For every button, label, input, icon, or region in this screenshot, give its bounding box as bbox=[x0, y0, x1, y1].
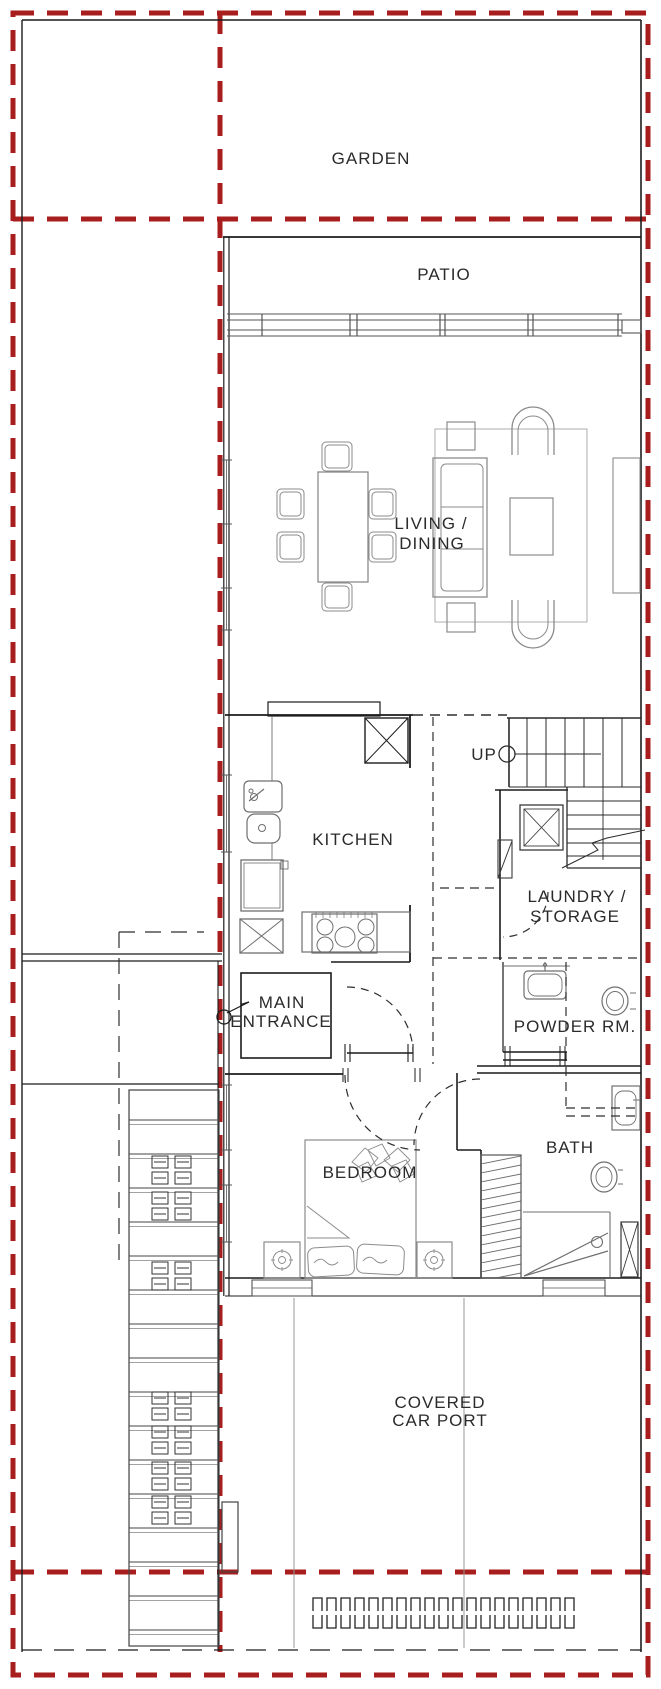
garden-label: GARDEN bbox=[332, 149, 411, 169]
bed bbox=[305, 1140, 416, 1278]
refrigerator-icon bbox=[241, 860, 288, 911]
bath-toilet-icon bbox=[591, 1162, 623, 1192]
living-dining-label-2: DINING bbox=[399, 534, 465, 554]
staircase bbox=[499, 718, 645, 868]
side-table-bottom bbox=[447, 603, 475, 632]
gate-fence bbox=[311, 1596, 577, 1630]
bathroom-fixtures bbox=[481, 1086, 640, 1278]
up-label: UP bbox=[471, 745, 497, 765]
stair-break-line bbox=[562, 830, 645, 868]
bed-pillows bbox=[307, 1244, 404, 1277]
living-dining-label-1: LIVING / bbox=[394, 514, 467, 534]
patio-label: PATIO bbox=[417, 265, 471, 285]
bedroom-label: BEDROOM bbox=[323, 1163, 418, 1183]
sliding-door bbox=[227, 314, 641, 336]
powder-room-label: POWDER RM. bbox=[514, 1017, 636, 1037]
console-table bbox=[613, 458, 640, 593]
bedroom-furniture bbox=[264, 1140, 452, 1278]
up-direction-circle bbox=[499, 746, 515, 762]
floor-plan: GARDEN PATIO LIVING / DINING KITCHEN UP … bbox=[0, 0, 661, 1689]
main-entrance-label-1: MAIN bbox=[259, 993, 306, 1013]
laundry-fixtures bbox=[498, 805, 563, 878]
powder-sink-icon bbox=[524, 962, 566, 999]
laundry-label-1: LAUNDRY / bbox=[527, 887, 626, 907]
washing-machine-icon bbox=[520, 805, 563, 850]
main-entrance-label-2: ENTRANCE bbox=[230, 1012, 332, 1032]
bath-label: BATH bbox=[546, 1138, 594, 1158]
dining-chairs bbox=[277, 442, 396, 611]
side-windows bbox=[221, 460, 232, 1242]
blanket-fold bbox=[307, 1206, 349, 1238]
coffee-table bbox=[510, 498, 553, 555]
powder-room-fixtures bbox=[503, 962, 636, 1015]
bedroom-door-swing bbox=[345, 1075, 420, 1150]
dishwasher-icon bbox=[240, 919, 283, 953]
shower-icon bbox=[523, 1212, 610, 1277]
carport-label-1: COVERED bbox=[394, 1393, 485, 1413]
kitchen-label: KITCHEN bbox=[312, 830, 394, 850]
gate-post bbox=[222, 1502, 238, 1572]
closet-hatch bbox=[481, 1155, 521, 1278]
powder-toilet-icon bbox=[602, 987, 636, 1015]
dining-table bbox=[318, 472, 368, 582]
cooktop-icon bbox=[302, 912, 410, 953]
laundry-label-2: STORAGE bbox=[530, 907, 620, 927]
kitchen-sink-icon bbox=[244, 781, 282, 843]
carport-lines bbox=[294, 1298, 464, 1648]
bath-door-swing bbox=[414, 1079, 480, 1145]
front-windows bbox=[252, 1280, 605, 1296]
side-table-top bbox=[447, 422, 475, 450]
carport-label-2: CAR PORT bbox=[392, 1411, 488, 1431]
entry-door-swing bbox=[347, 987, 413, 1053]
nightstand-left bbox=[264, 1242, 300, 1278]
water-heater-icon bbox=[621, 1222, 638, 1277]
dining-set bbox=[277, 442, 396, 611]
nightstand-right bbox=[417, 1242, 452, 1278]
